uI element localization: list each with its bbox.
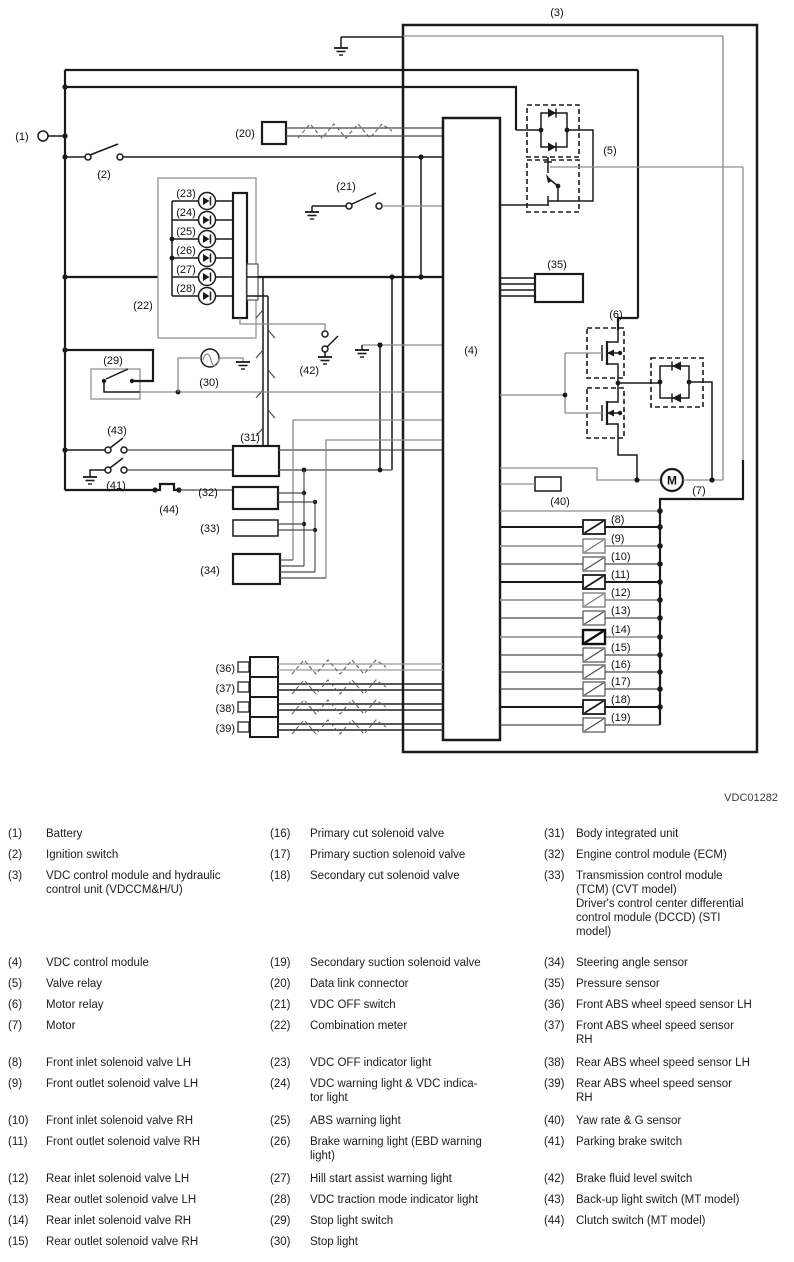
twisted-wire-marker [292, 680, 386, 694]
legend-item-label: Rear outlet solenoid valve RH [46, 1235, 198, 1249]
legend-item: (16)Primary cut solenoid valve [270, 827, 536, 841]
legend-column: (23)VDC OFF indicator light(24)VDC warni… [270, 1056, 536, 1112]
legend-column: (16)Primary cut solenoid valve(17)Primar… [270, 827, 536, 890]
legend-item: (31)Body integrated unit [544, 827, 790, 841]
callout-label: (19) [611, 712, 631, 724]
legend-item-number: (5) [8, 977, 46, 991]
callout-label: (11) [611, 569, 630, 581]
component-box [247, 264, 258, 300]
legend-item-number: (43) [544, 1193, 576, 1207]
legend-item-number: (39) [544, 1077, 576, 1105]
legend-column: (4)VDC control module(5)Valve relay(6)Mo… [8, 956, 262, 1040]
sensor-pin-box [238, 682, 249, 692]
junction-dot [657, 704, 663, 710]
legend-item: (14)Rear inlet solenoid valve RH [8, 1214, 262, 1228]
legend-item-label: Secondary cut solenoid valve [310, 869, 460, 883]
legend-item-number: (33) [544, 869, 576, 939]
combination-meter: (23)(24)(25)(26)(27)(28) [158, 178, 268, 338]
legend-item: (13)Rear outlet solenoid valve LH [8, 1193, 262, 1207]
terminal-circle [121, 447, 127, 453]
callout-label: (41) [106, 480, 126, 492]
wire-segment [327, 336, 338, 347]
callout-label: (43) [107, 425, 127, 437]
legend-item: (9)Front outlet solenoid valve LH [8, 1077, 262, 1091]
legend-item-label: Valve relay [46, 977, 102, 991]
legend-item: (1)Battery [8, 827, 262, 841]
terminal-circle [376, 203, 382, 209]
callout-label: (29) [103, 355, 123, 367]
legend-item-number: (36) [544, 998, 576, 1012]
legend-item-label: VDC OFF indicator light [310, 1056, 431, 1070]
legend-item-number: (32) [544, 848, 576, 862]
legend-item-number: (34) [544, 956, 576, 970]
legend-item-label: Motor relay [46, 998, 104, 1012]
legend-item: (29)Stop light switch [270, 1214, 536, 1228]
callout-label: (38) [215, 703, 235, 715]
wiring-diagram: (23)(24)(25)(26)(27)(28) [0, 0, 794, 812]
engine-control-module [233, 487, 315, 509]
legend-item-label: Combination meter [310, 1019, 407, 1033]
callout-label: (17) [611, 676, 631, 688]
legend-item-number: (17) [270, 848, 310, 862]
terminal-circle [378, 468, 383, 473]
ground-symbol [83, 477, 97, 484]
callout-label: (16) [611, 659, 631, 671]
junction-dot [657, 652, 663, 658]
backup-light-switch [62, 438, 233, 453]
terminal-circle [62, 347, 67, 352]
sensor-pin-box [238, 662, 249, 672]
terminal-circle [657, 508, 663, 514]
legend-column: (40)Yaw rate & G sensor(41)Parking brake… [544, 1114, 790, 1156]
junction-dot [657, 669, 663, 675]
legend-item: (7)Motor [8, 1019, 262, 1033]
legend-item: (38)Rear ABS wheel speed sensor LH [544, 1056, 790, 1070]
junction-dot [657, 524, 663, 530]
legend-item-label: Ignition switch [46, 848, 118, 862]
legend-item-number: (16) [270, 827, 310, 841]
terminal-circle [322, 331, 328, 337]
legend-item-number: (40) [544, 1114, 576, 1128]
legend-item-label: Parking brake switch [576, 1135, 682, 1149]
legend-item-number: (2) [8, 848, 46, 862]
legend-item-number: (29) [270, 1214, 310, 1228]
ground-symbol [355, 350, 369, 357]
legend-item-label: Front ABS wheel speed sensor LH [576, 998, 752, 1012]
legend-column: (27)Hill start assist warning light(28)V… [270, 1172, 536, 1256]
callout-label: (3) [550, 7, 563, 19]
sensor-connector-box [250, 657, 278, 677]
legend-item: (21)VDC OFF switch [270, 998, 536, 1012]
legend-item-label: Primary suction solenoid valve [310, 848, 465, 862]
legend-item: (4)VDC control module [8, 956, 262, 970]
legend-item-number: (14) [8, 1214, 46, 1228]
callout-label: (13) [611, 605, 631, 617]
terminal-circle [618, 411, 622, 415]
legend-item-number: (12) [8, 1172, 46, 1186]
legend-column: (19)Secondary suction solenoid valve(20)… [270, 956, 536, 1040]
legend-item-label: VDC control module [46, 956, 149, 970]
legend-item: (26)Brake warning light (EBD warning lig… [270, 1135, 536, 1163]
legend-item-label: VDC OFF switch [310, 998, 396, 1012]
steering-angle-sensor [233, 554, 326, 584]
component-box [262, 122, 286, 144]
legend-item-label: Engine control module (ECM) [576, 848, 727, 862]
legend-item-number: (42) [544, 1172, 576, 1186]
legend-column: (1)Battery(2)Ignition switch(3)VDC contr… [8, 827, 262, 904]
callout-label: (42) [299, 365, 319, 377]
legend-item-number: (10) [8, 1114, 46, 1128]
legend-item: (39)Rear ABS wheel speed sensor RH [544, 1077, 790, 1105]
legend-item: (25)ABS warning light [270, 1114, 536, 1128]
callout-label: (4) [464, 345, 477, 357]
service-manual-page: (23)(24)(25)(26)(27)(28) [0, 0, 794, 1262]
legend-item-label: Brake warning light (EBD warning light) [310, 1135, 482, 1163]
wire-segment [268, 410, 275, 418]
component-box [233, 554, 280, 584]
legend-item-label: Front ABS wheel speed sensor RH [576, 1019, 734, 1047]
legend-column: (34)Steering angle sensor(35)Pressure se… [544, 956, 790, 1054]
callout-label: (32) [198, 487, 218, 499]
legend-item: (42)Brake fluid level switch [544, 1172, 790, 1186]
component-box [233, 487, 278, 509]
legend-item: (23)VDC OFF indicator light [270, 1056, 536, 1070]
terminal-circle [121, 467, 127, 473]
terminal-circle [709, 477, 714, 482]
legend-item-number: (30) [270, 1235, 310, 1249]
legend-item-label: Secondary suction solenoid valve [310, 956, 481, 970]
component-box [535, 477, 561, 491]
legend-item-number: (1) [8, 827, 46, 841]
legend-item-label: ABS warning light [310, 1114, 401, 1128]
legend-item: (17)Primary suction solenoid valve [270, 848, 536, 862]
legend-item-label: Stop light switch [310, 1214, 393, 1228]
wire-segment [110, 438, 123, 448]
callout-label: (21) [336, 181, 356, 193]
terminal-circle [62, 274, 67, 279]
legend-item-label: Brake fluid level switch [576, 1172, 692, 1186]
legend-item: (36)Front ABS wheel speed sensor LH [544, 998, 790, 1012]
legend-item-label: VDC traction mode indicator light [310, 1193, 478, 1207]
component-box [535, 274, 583, 302]
legend-column: (31)Body integrated unit(32)Engine contr… [544, 827, 790, 946]
legend-item-label: Stop light [310, 1235, 358, 1249]
ground-symbol [334, 48, 348, 55]
wire-segment [90, 144, 118, 155]
legend-item-number: (19) [270, 956, 310, 970]
legend-item: (6)Motor relay [8, 998, 262, 1012]
terminal-circle [130, 379, 134, 383]
legend-item-number: (13) [8, 1193, 46, 1207]
terminal-circle [539, 128, 544, 133]
wire-path [178, 358, 201, 392]
legend-item: (27)Hill start assist warning light [270, 1172, 536, 1186]
legend-item-label: Motor [46, 1019, 75, 1033]
legend-item-label: Rear inlet solenoid valve LH [46, 1172, 189, 1186]
legend-item-label: VDC control module and hydraulic control… [46, 869, 221, 897]
legend-item-label: Steering angle sensor [576, 956, 688, 970]
legend-item: (41)Parking brake switch [544, 1135, 790, 1149]
legend-item-number: (15) [8, 1235, 46, 1249]
callout-label: (10) [611, 551, 631, 563]
meter-harness-channel [256, 277, 275, 446]
meter-connector-bar [233, 193, 247, 318]
legend-item-label: Rear outlet solenoid valve LH [46, 1193, 196, 1207]
legend-item-number: (41) [544, 1135, 576, 1149]
ground-symbol [236, 362, 250, 369]
legend-item-label: Body integrated unit [576, 827, 678, 841]
callout-label: (6) [609, 309, 622, 321]
legend-item-label: VDC warning light & VDC indica- tor ligh… [310, 1077, 477, 1105]
wire-segment [268, 370, 275, 378]
terminal-circle [563, 393, 568, 398]
legend-item: (37)Front ABS wheel speed sensor RH [544, 1019, 790, 1047]
callout-label: (26) [176, 245, 196, 257]
callout-label: (7) [692, 485, 705, 497]
legend-item: (35)Pressure sensor [544, 977, 790, 991]
legend-item: (18)Secondary cut solenoid valve [270, 869, 536, 883]
sensor-connector-box [250, 697, 278, 717]
legend-item: (2)Ignition switch [8, 848, 262, 862]
battery-symbol [38, 131, 68, 141]
legend-item-number: (26) [270, 1135, 310, 1163]
vdc-control-module [443, 118, 500, 740]
legend-item-number: (4) [8, 956, 46, 970]
junction-dot [657, 597, 663, 603]
legend-item-number: (37) [544, 1019, 576, 1047]
legend-item: (32)Engine control module (ECM) [544, 848, 790, 862]
figure-code: VDC01282 [724, 792, 778, 804]
callout-label: (22) [133, 300, 153, 312]
legend-column: (12)Rear inlet solenoid valve LH(13)Rear… [8, 1172, 262, 1256]
wire-segment [256, 390, 263, 398]
terminal-circle [618, 351, 622, 355]
legend-item-number: (8) [8, 1056, 46, 1070]
ground-symbol [318, 357, 332, 364]
legend-item: (20)Data link connector [270, 977, 536, 991]
junction-dot [657, 615, 663, 621]
legend-item-label: Rear ABS wheel speed sensor LH [576, 1056, 750, 1070]
callout-label: (5) [603, 145, 616, 157]
legend-item: (33)Transmission control module (TCM) (C… [544, 869, 790, 939]
component-box [91, 369, 140, 399]
component-box [233, 520, 278, 536]
legend-item-number: (35) [544, 977, 576, 991]
sensor-connector-box [250, 677, 278, 697]
legend-item: (30)Stop light [270, 1235, 536, 1249]
legend-column: (25)ABS warning light(26)Brake warning l… [270, 1114, 536, 1170]
terminal-circle [62, 84, 67, 89]
callout-label: (27) [176, 264, 196, 276]
legend-item-number: (23) [270, 1056, 310, 1070]
junction-dot [657, 579, 663, 585]
wire-segment [268, 330, 275, 338]
wire-segment [256, 350, 263, 358]
legend-item-number: (24) [270, 1077, 310, 1105]
callout-label: (1) [15, 131, 28, 143]
legend-item-label: Primary cut solenoid valve [310, 827, 444, 841]
terminal-circle [634, 477, 639, 482]
callout-label: (35) [547, 259, 567, 271]
sensor-connector-box [250, 717, 278, 737]
legend-item-number: (3) [8, 869, 46, 897]
legend-item-number: (11) [8, 1135, 46, 1149]
legend-item-number: (25) [270, 1114, 310, 1128]
legend-item-number: (27) [270, 1172, 310, 1186]
junction-dot [657, 686, 663, 692]
legend-item-label: Data link connector [310, 977, 408, 991]
legend-column: (42)Brake fluid level switch(43)Back-up … [544, 1172, 790, 1235]
legend-item: (40)Yaw rate & G sensor [544, 1114, 790, 1128]
motor-letter: M [667, 474, 677, 488]
sensor-pin-box [238, 702, 249, 712]
terminal-circle [117, 154, 123, 160]
legend-item-label: Front inlet solenoid valve LH [46, 1056, 191, 1070]
legend-item-number: (18) [270, 869, 310, 883]
callout-label: (33) [200, 523, 220, 535]
callout-label: (28) [176, 283, 196, 295]
wire-segment [352, 193, 376, 204]
callout-label: (15) [611, 642, 631, 654]
legend-item: (5)Valve relay [8, 977, 262, 991]
legend-item: (15)Rear outlet solenoid valve RH [8, 1235, 262, 1249]
legend-item-number: (22) [270, 1019, 310, 1033]
legend-item-number: (31) [544, 827, 576, 841]
junction-dot [657, 634, 663, 640]
terminal-circle [152, 487, 157, 492]
legend-item-number: (6) [8, 998, 46, 1012]
legend-column: (10)Front inlet solenoid valve RH(11)Fro… [8, 1114, 262, 1156]
callout-label: (18) [611, 694, 631, 706]
callout-label: (8) [611, 514, 624, 526]
legend-item: (43)Back-up light switch (MT model) [544, 1193, 790, 1207]
callout-label: (40) [550, 496, 570, 508]
legend-item-label: Hill start assist warning light [310, 1172, 452, 1186]
legend-item-number: (9) [8, 1077, 46, 1091]
terminal-circle [658, 380, 663, 385]
legend-item: (34)Steering angle sensor [544, 956, 790, 970]
terminal-circle [38, 131, 48, 141]
legend-item-label: Back-up light switch (MT model) [576, 1193, 739, 1207]
component-box [443, 118, 500, 740]
legend-item-label: Rear inlet solenoid valve RH [46, 1214, 191, 1228]
legend-item-number: (28) [270, 1193, 310, 1207]
callout-label: (24) [176, 207, 196, 219]
wire-segment [256, 310, 263, 318]
legend-column: (38)Rear ABS wheel speed sensor LH(39)Re… [544, 1056, 790, 1112]
junction-dot [657, 543, 663, 549]
callout-label: (30) [199, 377, 219, 389]
callout-label: (34) [200, 565, 220, 577]
legend-item: (10)Front inlet solenoid valve RH [8, 1114, 262, 1128]
callout-label: (9) [611, 533, 624, 545]
callout-label: (14) [611, 624, 631, 636]
wire-path [155, 484, 179, 490]
callout-label: (44) [159, 504, 179, 516]
callout-label: (20) [235, 128, 255, 140]
terminal-circle [346, 203, 352, 209]
callout-label: (2) [97, 169, 110, 181]
legend-item-label: Clutch switch (MT model) [576, 1214, 706, 1228]
legend-item-number: (21) [270, 998, 310, 1012]
legend-item-number: (44) [544, 1214, 576, 1228]
legend-item-label: Transmission control module (TCM) (CVT m… [576, 869, 744, 939]
legend-item-label: Front outlet solenoid valve RH [46, 1135, 200, 1149]
legend-item: (3)VDC control module and hydraulic cont… [8, 869, 262, 897]
callout-label: (37) [215, 683, 235, 695]
legend-item: (24)VDC warning light & VDC indica- tor … [270, 1077, 536, 1105]
legend-item-label: Pressure sensor [576, 977, 660, 991]
twisted-wire-marker [292, 700, 386, 714]
wire-segment [110, 458, 123, 468]
twisted-wire-marker [292, 720, 386, 734]
legend-item-number: (20) [270, 977, 310, 991]
legend-item: (19)Secondary suction solenoid valve [270, 956, 536, 970]
junction-dot [657, 561, 663, 567]
legend-item-label: Yaw rate & G sensor [576, 1114, 681, 1128]
legend-item: (11)Front outlet solenoid valve RH [8, 1135, 262, 1149]
legend-item-label: Rear ABS wheel speed sensor RH [576, 1077, 732, 1105]
legend-item-number: (38) [544, 1056, 576, 1070]
callout-label: (12) [611, 587, 631, 599]
callout-label: (23) [176, 188, 196, 200]
legend-item: (22)Combination meter [270, 1019, 536, 1033]
legend-item-label: Front inlet solenoid valve RH [46, 1114, 193, 1128]
legend-item: (8)Front inlet solenoid valve LH [8, 1056, 262, 1070]
callout-label: (25) [176, 226, 196, 238]
ground-symbol [305, 212, 319, 219]
top-ground [334, 37, 403, 55]
callout-label: (39) [215, 723, 235, 735]
callout-label: (36) [215, 663, 235, 675]
callout-label: (31) [240, 432, 260, 444]
wire-path [90, 470, 105, 477]
legend-item: (44)Clutch switch (MT model) [544, 1214, 790, 1228]
component-box [233, 446, 279, 476]
legend-item-label: Battery [46, 827, 82, 841]
legend-item: (28)VDC traction mode indicator light [270, 1193, 536, 1207]
sensor-pin-box [238, 722, 249, 732]
legend-column: (8)Front inlet solenoid valve LH(9)Front… [8, 1056, 262, 1098]
twisted-wire-marker [292, 660, 386, 674]
legend-item-label: Front outlet solenoid valve LH [46, 1077, 198, 1091]
terminal-circle [62, 133, 67, 138]
legend-item-number: (7) [8, 1019, 46, 1033]
legend-item: (12)Rear inlet solenoid valve LH [8, 1172, 262, 1186]
